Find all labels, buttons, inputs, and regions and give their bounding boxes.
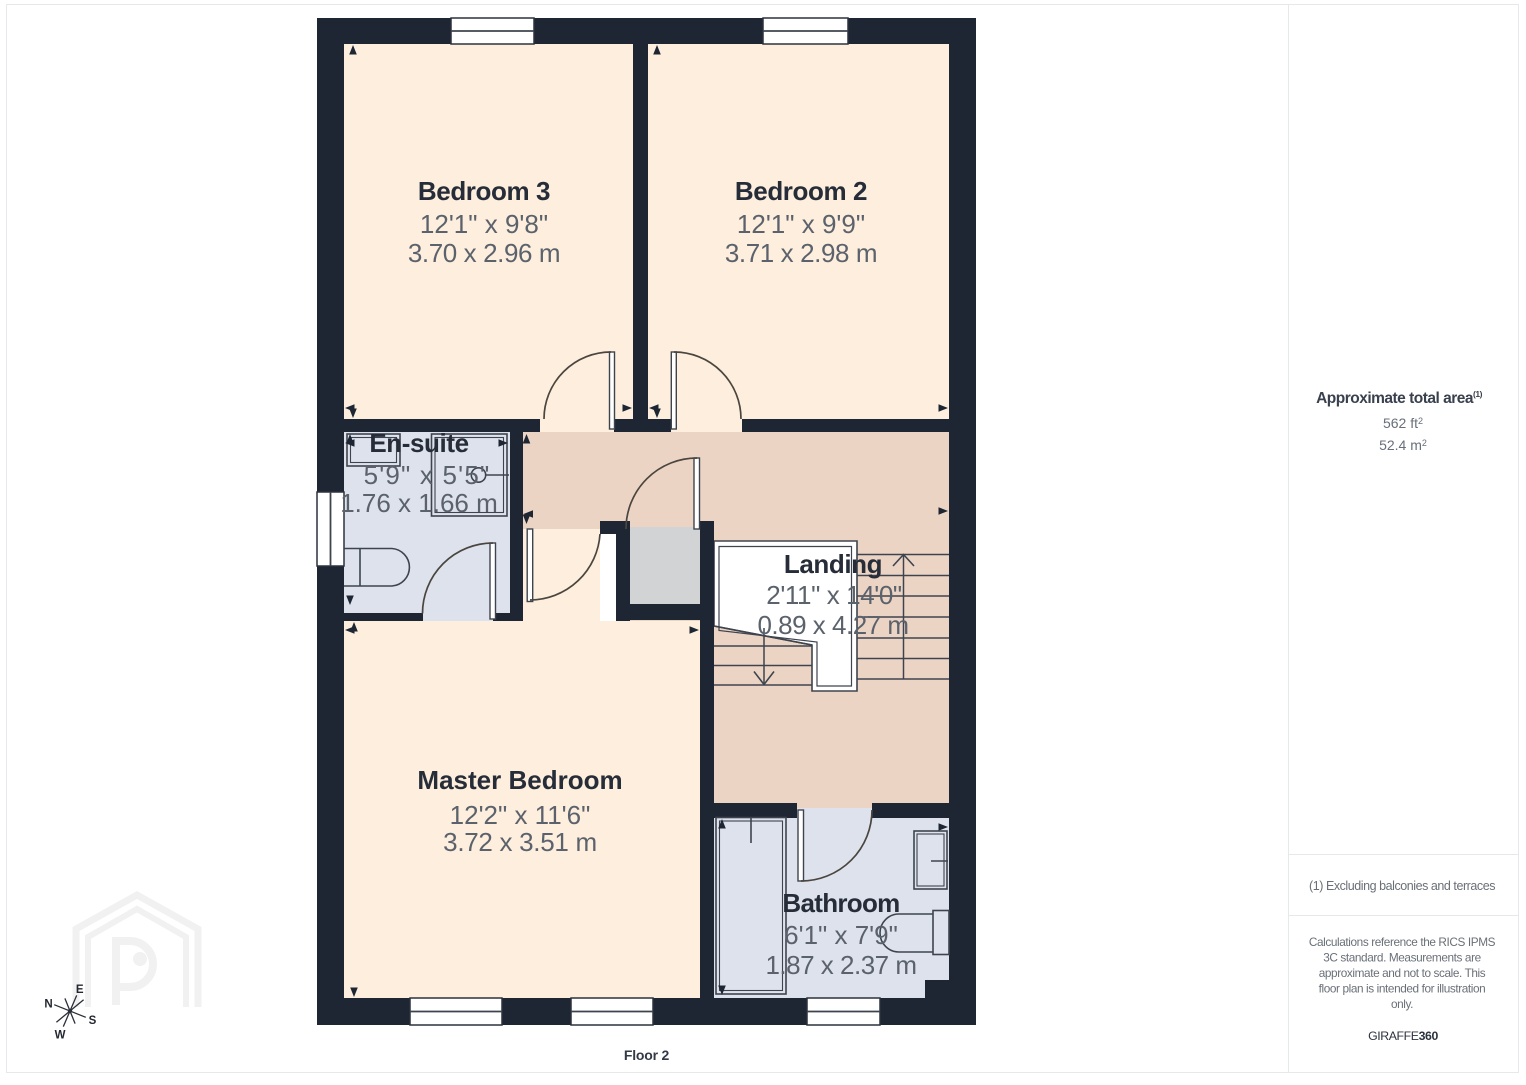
svg-text:12'2" x 11'6": 12'2" x 11'6" bbox=[450, 800, 591, 830]
svg-text:562 ft2: 562 ft2 bbox=[1383, 415, 1423, 431]
svg-text:3.71 x 2.98 m: 3.71 x 2.98 m bbox=[725, 238, 877, 268]
svg-text:12'1" x 9'8": 12'1" x 9'8" bbox=[420, 209, 548, 239]
svg-text:N: N bbox=[44, 999, 52, 1011]
svg-text:W: W bbox=[55, 1030, 66, 1042]
svg-text:Approximate total area(1): Approximate total area(1) bbox=[1316, 389, 1483, 407]
svg-text:Master Bedroom: Master Bedroom bbox=[417, 765, 622, 795]
svg-text:6'1" x 7'9": 6'1" x 7'9" bbox=[784, 920, 898, 950]
svg-text:Bathroom: Bathroom bbox=[782, 888, 899, 918]
svg-text:(1) Excluding balconies and te: (1) Excluding balconies and terraces bbox=[1309, 879, 1495, 893]
svg-text:5'9" x 5'5": 5'9" x 5'5" bbox=[364, 460, 491, 490]
svg-text:only.: only. bbox=[1391, 997, 1413, 1011]
svg-text:1.87 x 2.37 m: 1.87 x 2.37 m bbox=[765, 950, 916, 980]
svg-text:52.4 m2: 52.4 m2 bbox=[1379, 437, 1427, 453]
svg-text:2'11" x 14'0": 2'11" x 14'0" bbox=[766, 580, 902, 610]
svg-text:3.72 x 3.51 m: 3.72 x 3.51 m bbox=[443, 827, 597, 857]
svg-text:En-suite: En-suite bbox=[369, 428, 468, 458]
svg-text:Bedroom 2: Bedroom 2 bbox=[735, 176, 867, 206]
svg-text:12'1" x 9'9": 12'1" x 9'9" bbox=[737, 209, 865, 239]
svg-text:3C standard. Measurements are: 3C standard. Measurements are bbox=[1323, 951, 1481, 965]
svg-text:Bedroom 3: Bedroom 3 bbox=[418, 176, 550, 206]
svg-text:Calculations reference the RIC: Calculations reference the RICS IPMS bbox=[1309, 935, 1496, 949]
svg-text:Floor 2: Floor 2 bbox=[624, 1047, 670, 1063]
svg-text:0.89 x 4.27 m: 0.89 x 4.27 m bbox=[757, 610, 908, 640]
svg-text:S: S bbox=[89, 1015, 97, 1027]
svg-text:1.76 x 1.66 m: 1.76 x 1.66 m bbox=[340, 488, 498, 518]
svg-text:E: E bbox=[76, 984, 84, 996]
svg-text:floor plan is intended for ill: floor plan is intended for illustration bbox=[1319, 982, 1486, 996]
svg-text:approximate and not to scale.: approximate and not to scale. This bbox=[1319, 966, 1486, 980]
svg-text:Landing: Landing bbox=[784, 549, 882, 579]
svg-text:GIRAFFE360: GIRAFFE360 bbox=[1368, 1029, 1438, 1043]
svg-text:3.70 x 2.96 m: 3.70 x 2.96 m bbox=[408, 238, 560, 268]
